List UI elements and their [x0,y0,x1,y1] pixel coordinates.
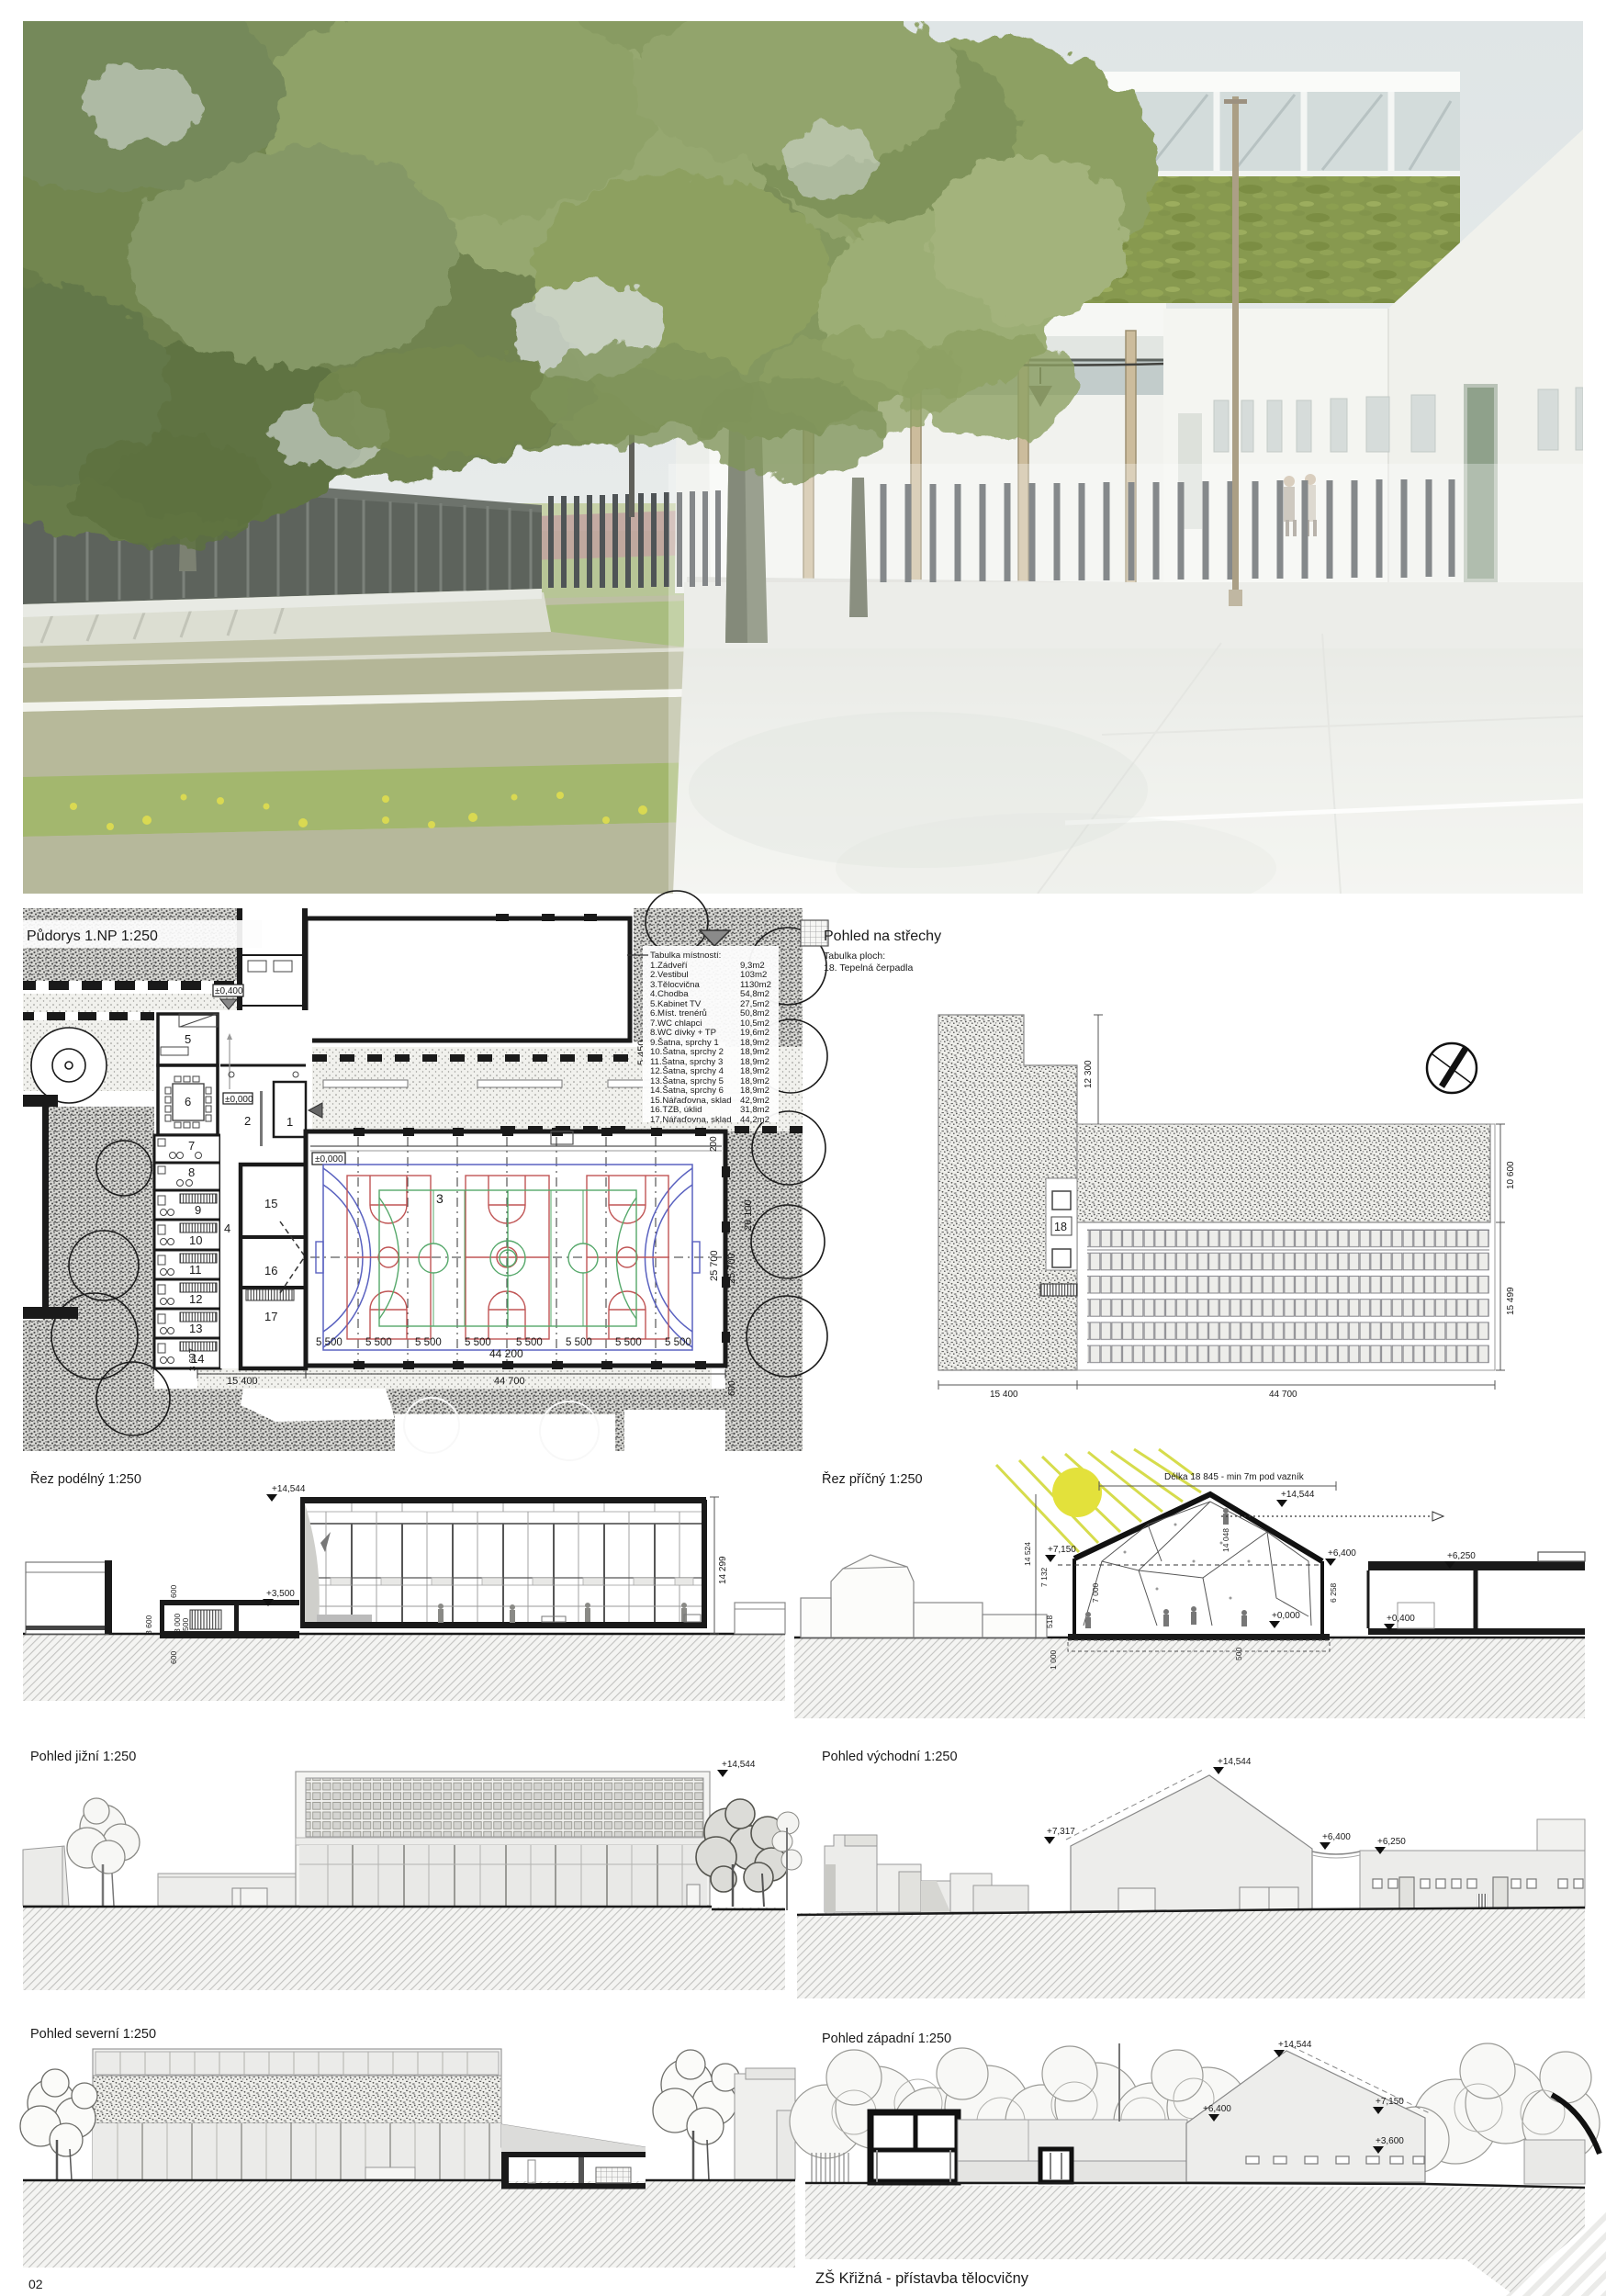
svg-text:25 700: 25 700 [709,1250,720,1281]
svg-text:±0,000: ±0,000 [225,1095,253,1105]
svg-text:6.Míst. trenérů: 6.Míst. trenérů [650,1008,707,1019]
svg-text:18,9m2: 18,9m2 [740,1086,769,1096]
svg-text:10.Šatna, sprchy 2: 10.Šatna, sprchy 2 [650,1047,724,1057]
svg-text:+14,544: +14,544 [1278,2040,1312,2050]
svg-text:12 300: 12 300 [1084,1060,1094,1088]
svg-text:31,8m2: 31,8m2 [740,1105,769,1115]
svg-text:+14,544: +14,544 [1218,1757,1252,1767]
svg-text:+6,400: +6,400 [1322,1832,1351,1842]
svg-text:18,9m2: 18,9m2 [740,1047,769,1057]
svg-text:44 700: 44 700 [1269,1390,1297,1400]
svg-text:7 000: 7 000 [1091,1582,1100,1603]
svg-text:5 500: 5 500 [615,1337,642,1348]
svg-text:+3,500: +3,500 [266,1589,295,1599]
svg-text:±0,000: ±0,000 [315,1154,343,1165]
svg-text:19,6m2: 19,6m2 [740,1028,769,1038]
svg-text:Pohled severní 1:250: Pohled severní 1:250 [30,2027,156,2042]
svg-text:13: 13 [189,1322,202,1335]
svg-text:Pohled na střechy: Pohled na střechy [824,929,941,944]
svg-text:8: 8 [188,1165,195,1179]
svg-text:Pohled západní 1:250: Pohled západní 1:250 [822,2032,951,2046]
svg-text:+6,250: +6,250 [1377,1837,1406,1847]
svg-text:10: 10 [189,1233,202,1247]
svg-text:+0,000: +0,000 [1272,1611,1300,1621]
svg-text:+7,150: +7,150 [1048,1545,1076,1555]
svg-text:5 500: 5 500 [566,1337,592,1348]
svg-text:±0,400: ±0,400 [215,986,243,996]
svg-text:+14,544: +14,544 [1281,1490,1315,1500]
svg-text:2.Vestibul: 2.Vestibul [650,970,689,980]
svg-text:14.Šatna, sprchy 6: 14.Šatna, sprchy 6 [650,1086,724,1096]
svg-text:500: 500 [1234,1648,1243,1660]
svg-text:Tabulka ploch:: Tabulka ploch: [824,951,885,962]
svg-text:25 700: 25 700 [726,1253,737,1284]
svg-text:15: 15 [264,1197,277,1210]
svg-text:7 132: 7 132 [1039,1567,1049,1587]
svg-text:44,2m2: 44,2m2 [740,1115,769,1125]
svg-text:16: 16 [264,1264,277,1277]
svg-text:5: 5 [185,1032,191,1046]
svg-text:Pohled východní 1:250: Pohled východní 1:250 [822,1750,958,1764]
svg-text:14 299: 14 299 [718,1556,728,1584]
svg-text:103m2: 103m2 [740,970,767,980]
svg-text:Pohled jižní 1:250: Pohled jižní 1:250 [30,1750,136,1764]
svg-text:14 048: 14 048 [1221,1528,1230,1552]
svg-text:26 100: 26 100 [743,1199,754,1231]
svg-text:15 400: 15 400 [227,1376,258,1387]
svg-text:1: 1 [286,1115,293,1129]
svg-text:6 258: 6 258 [1329,1582,1338,1603]
svg-text:5 500: 5 500 [415,1337,442,1348]
svg-text:ZŠ Křižná - přístavba tělocvič: ZŠ Křižná - přístavba tělocvičny [815,2269,1029,2287]
svg-text:1 000: 1 000 [1049,1649,1058,1670]
svg-text:+0,400: +0,400 [1387,1614,1415,1624]
svg-text:5 500: 5 500 [316,1337,343,1348]
svg-text:600: 600 [169,1585,178,1598]
svg-text:54,8m2: 54,8m2 [740,989,769,999]
svg-text:3 600: 3 600 [144,1615,153,1635]
svg-text:600: 600 [727,1380,737,1396]
svg-text:Řez podélný 1:250: Řez podélný 1:250 [30,1471,141,1487]
svg-text:15 499: 15 499 [1506,1287,1516,1315]
svg-text:500: 500 [181,1618,190,1631]
svg-text:3 607: 3 607 [188,1348,198,1371]
svg-text:Tabulka místností:: Tabulka místností: [650,951,721,961]
svg-text:10 600: 10 600 [1506,1161,1516,1189]
svg-text:44 700: 44 700 [494,1376,525,1387]
svg-text:9: 9 [195,1203,201,1217]
svg-text:6: 6 [185,1095,191,1109]
svg-text:518: 518 [1045,1615,1054,1628]
svg-text:600: 600 [169,1651,178,1664]
svg-text:2: 2 [244,1114,251,1128]
svg-text:+6,250: +6,250 [1447,1551,1476,1561]
svg-text:12.Šatna, sprchy 4: 12.Šatna, sprchy 4 [650,1066,724,1076]
svg-text:5 500: 5 500 [465,1337,491,1348]
svg-text:3: 3 [436,1191,444,1206]
svg-text:Délka 18 845 - min 7m pod vaz: Délka 18 845 - min 7m pod vazník [1164,1472,1305,1482]
svg-text:200: 200 [709,1136,719,1152]
svg-text:+14,544: +14,544 [722,1760,756,1770]
svg-text:4: 4 [224,1221,230,1235]
svg-text:+6,400: +6,400 [1203,2104,1231,2114]
svg-text:Řez příčný 1:250: Řez příčný 1:250 [822,1471,923,1487]
svg-text:+6,400: +6,400 [1328,1548,1356,1559]
svg-text:Půdorys 1.NP 1:250: Půdorys 1.NP 1:250 [27,928,158,944]
svg-text:18,9m2: 18,9m2 [740,1066,769,1076]
svg-text:4.Chodba: 4.Chodba [650,989,689,999]
svg-text:14 524: 14 524 [1023,1542,1032,1566]
svg-text:02: 02 [28,2277,43,2291]
svg-text:17: 17 [264,1310,277,1323]
svg-text:+7,317: +7,317 [1047,1827,1075,1837]
svg-text:8.WC dívky + TP: 8.WC dívky + TP [650,1028,716,1038]
svg-text:+14,544: +14,544 [272,1484,306,1494]
svg-text:18: 18 [1054,1221,1067,1233]
svg-text:15 400: 15 400 [990,1390,1018,1400]
svg-text:+3,600: +3,600 [1376,2136,1404,2146]
svg-text:16.TZB, úklid: 16.TZB, úklid [650,1105,702,1115]
svg-text:5 500: 5 500 [665,1337,691,1348]
svg-text:11: 11 [189,1263,202,1277]
svg-text:+7,150: +7,150 [1376,2097,1404,2107]
svg-text:7: 7 [188,1139,195,1153]
svg-text:50,8m2: 50,8m2 [740,1008,769,1019]
svg-text:44 200: 44 200 [489,1347,523,1360]
svg-text:17.Nářaďovna, sklad: 17.Nářaďovna, sklad [650,1115,732,1125]
svg-text:12: 12 [189,1292,202,1306]
svg-text:18. Tepelná čerpadla: 18. Tepelná čerpadla [824,962,913,974]
svg-text:5 500: 5 500 [365,1337,392,1348]
